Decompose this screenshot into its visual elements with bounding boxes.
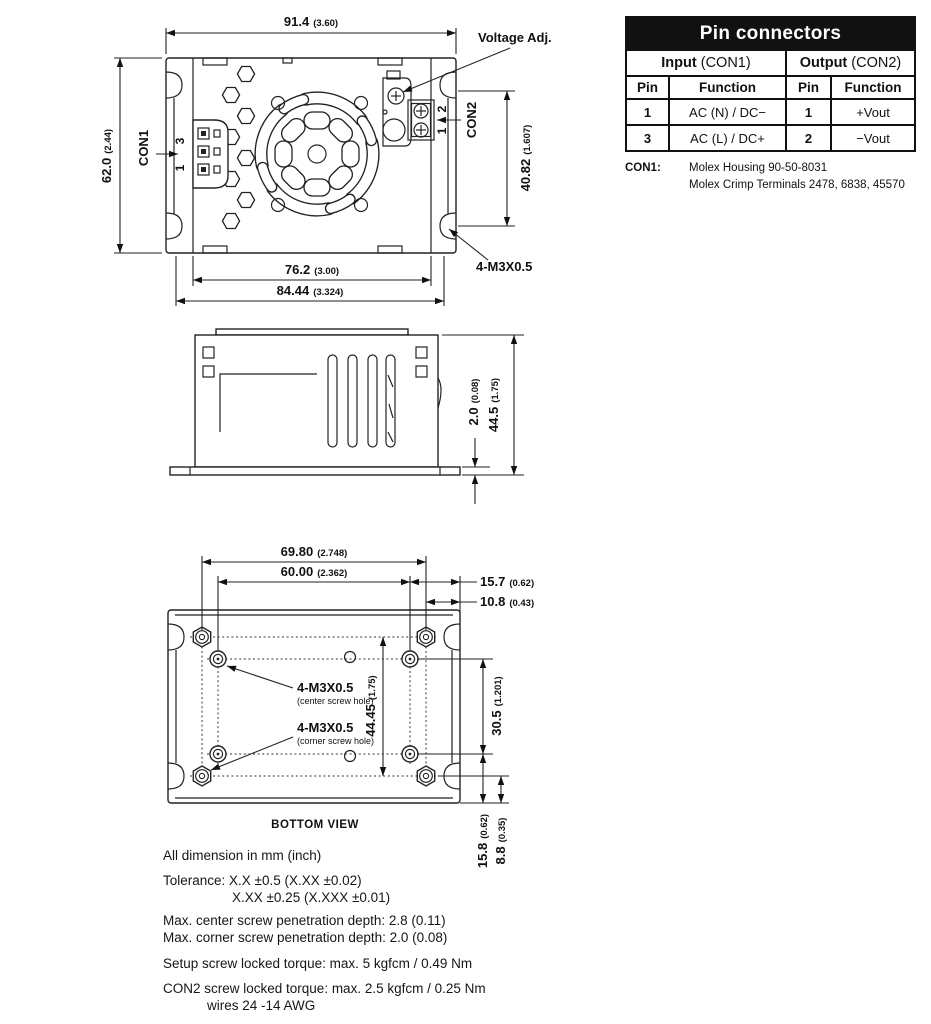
dim-overall-height: 62.0(2.44) <box>99 58 162 253</box>
dim-8-8-in: (0.35) <box>497 818 508 843</box>
svg-text:76.2(3.00): 76.2(3.00) <box>285 262 339 277</box>
screw-callout: 4-M3X0.5 <box>449 229 532 274</box>
dim-60-00-in: (2.362) <box>317 568 347 579</box>
con1-footnote: CON1: Molex Housing 90-50-8031 Molex Cri… <box>625 160 914 194</box>
center-screw-label: 4-M3X0.5 <box>297 680 353 695</box>
output-group-bold: Output <box>800 55 848 71</box>
con1-label: CON1 <box>136 130 151 166</box>
dim-40-82-in: (1.607) <box>522 125 533 155</box>
note-wires: wires 24 -14 AWG <box>207 998 315 1013</box>
svg-text:84.44(3.324): 84.44(3.324) <box>277 283 344 298</box>
svg-text:15.7(0.62): 15.7(0.62) <box>480 574 534 589</box>
svg-text:10.8(0.43): 10.8(0.43) <box>480 594 534 609</box>
row1-output-pin: 1 <box>786 99 831 125</box>
svg-text:8.8(0.35): 8.8(0.35) <box>493 818 508 865</box>
dim-15-8-in: (0.62) <box>479 814 490 839</box>
svg-text:2.0(0.08): 2.0(0.08) <box>466 379 481 426</box>
row1-input-pin: 1 <box>626 99 669 125</box>
pin-table-title: Pin connectors <box>626 17 915 50</box>
svg-text:30.5(1.201): 30.5(1.201) <box>489 676 504 735</box>
top-view-drawing: 91.4(3.60) 62.0(2.44) 40.82(1.607) 76.2(… <box>78 8 558 313</box>
svg-text:91.4(3.60): 91.4(3.60) <box>284 14 338 29</box>
dim-44-45-mm: 44.45 <box>363 704 378 737</box>
dim-62-0-in: (2.44) <box>103 129 114 154</box>
pin-table-row-1: 1 AC (N) / DC− 1 +Vout <box>626 99 915 125</box>
dim-62-0-mm: 62.0 <box>99 158 114 183</box>
dim-inner-width: 76.2(3.00) <box>193 256 431 286</box>
con2-callout: CON2 2 1 <box>435 102 479 138</box>
row1-input-function: AC (N) / DC− <box>669 99 786 125</box>
note-setup-torque: Setup screw locked torque: max. 5 kgfcm … <box>163 956 472 971</box>
dim-91-4-mm: 91.4 <box>284 14 310 29</box>
note-center-depth: Max. center screw penetration depth: 2.8… <box>163 913 446 928</box>
corner-screw-label: 4-M3X0.5 <box>297 720 353 735</box>
dim-30-5-mm: 30.5 <box>489 710 504 735</box>
pin-connectors-panel: Pin connectors Input (CON1) Output (CON2… <box>625 16 914 194</box>
dim-69-80-mm: 69.80 <box>281 544 314 559</box>
dim-69-80-in: (2.748) <box>317 548 347 559</box>
col-header-output-pin: Pin <box>786 76 831 99</box>
side-view-body <box>170 329 460 475</box>
col-header-output-function: Function <box>831 76 915 99</box>
dim-15-7-mm: 15.7 <box>480 574 505 589</box>
con2-pin-2-label: 2 <box>435 105 449 112</box>
col-header-input-function: Function <box>669 76 786 99</box>
con1-pin-3-label: 3 <box>173 137 187 144</box>
output-group-header: Output (CON2) <box>786 50 915 76</box>
con1-connector <box>193 120 228 188</box>
con1-footnote-label: CON1: <box>625 160 689 194</box>
dim-2-0-in: (0.08) <box>470 379 481 404</box>
corner-screw-sublabel: (corner screw hole) <box>297 736 374 746</box>
row2-input-function: AC (L) / DC+ <box>669 125 786 151</box>
datasheet-page: 91.4(3.60) 62.0(2.44) 40.82(1.607) 76.2(… <box>0 0 931 1024</box>
dim-edge-to-outer: 10.8(0.43) <box>426 594 534 609</box>
con2-pin-1-label: 1 <box>435 127 449 134</box>
con1-footnote-line1: Molex Housing 90-50-8031 <box>689 160 914 177</box>
side-view-drawing: 44.5(1.75) 2.0(0.08) <box>130 320 540 515</box>
con1-pin-1-label: 1 <box>173 164 187 171</box>
dim-10-8-mm: 10.8 <box>480 594 505 609</box>
dim-10-8-in: (0.43) <box>509 598 534 609</box>
dim-84-44-mm: 84.44 <box>277 283 310 298</box>
screw-label: 4-M3X0.5 <box>476 259 532 274</box>
dim-side-height: 44.5(1.75) <box>442 335 524 475</box>
row2-output-function: −Vout <box>831 125 915 151</box>
note-tolerance-2: X.XX ±0.25 (X.XXX ±0.01) <box>232 890 390 905</box>
dim-flange-thickness: 2.0(0.08) <box>462 379 490 504</box>
con2-label: CON2 <box>464 102 479 138</box>
dim-40-82-mm: 40.82 <box>518 159 533 192</box>
con1-footnote-line2: Molex Crimp Terminals 2478, 6838, 45570 <box>689 177 914 194</box>
row2-output-pin: 2 <box>786 125 831 151</box>
svg-text:69.80(2.748): 69.80(2.748) <box>281 544 348 559</box>
dim-15-7-in: (0.62) <box>509 578 534 589</box>
bottom-view-drawing: 69.80(2.748) 60.00(2.362) 15.7(0.62) 10.… <box>145 540 555 885</box>
center-screw-sublabel: (center screw hole) <box>297 696 374 706</box>
dim-76-2-mm: 76.2 <box>285 262 310 277</box>
svg-text:60.00(2.362): 60.00(2.362) <box>281 564 348 579</box>
svg-text:44.5(1.75): 44.5(1.75) <box>486 378 501 432</box>
input-group-header: Input (CON1) <box>626 50 786 76</box>
row2-input-pin: 3 <box>626 125 669 151</box>
input-group-bold: Input <box>661 55 696 71</box>
dim-44-5-in: (1.75) <box>490 378 501 403</box>
dim-91-4-in: (3.60) <box>313 18 338 29</box>
input-group-rest: (CON1) <box>697 55 751 71</box>
dim-30-5-in: (1.201) <box>493 676 504 706</box>
svg-text:40.82(1.607): 40.82(1.607) <box>518 125 533 192</box>
note-corner-depth: Max. corner screw penetration depth: 2.0… <box>163 930 447 945</box>
dim-60-00-mm: 60.00 <box>281 564 314 579</box>
voltage-adj-label: Voltage Adj. <box>478 30 552 45</box>
note-con2-torque: CON2 screw locked torque: max. 2.5 kgfcm… <box>163 981 486 996</box>
bottom-view-caption: BOTTOM VIEW <box>271 819 359 831</box>
bottom-view-body <box>168 610 460 803</box>
dim-2-0-mm: 2.0 <box>466 407 481 425</box>
row1-output-function: +Vout <box>831 99 915 125</box>
svg-text:62.0(2.44): 62.0(2.44) <box>99 129 114 183</box>
dim-overall-width: 91.4(3.60) <box>166 14 456 54</box>
dim-44-5-mm: 44.5 <box>486 407 501 432</box>
pin-connectors-table: Pin connectors Input (CON1) Output (CON2… <box>625 16 916 152</box>
svg-text:15.8(0.62): 15.8(0.62) <box>475 814 490 868</box>
col-header-input-pin: Pin <box>626 76 669 99</box>
dim-76-2-in: (3.00) <box>314 266 339 277</box>
dim-8-8-mm: 8.8 <box>493 846 508 864</box>
dim-15-8-mm: 15.8 <box>475 843 490 868</box>
pin-table-row-2: 3 AC (L) / DC+ 2 −Vout <box>626 125 915 151</box>
output-group-rest: (CON2) <box>847 55 901 71</box>
dim-84-44-in: (3.324) <box>313 287 343 298</box>
